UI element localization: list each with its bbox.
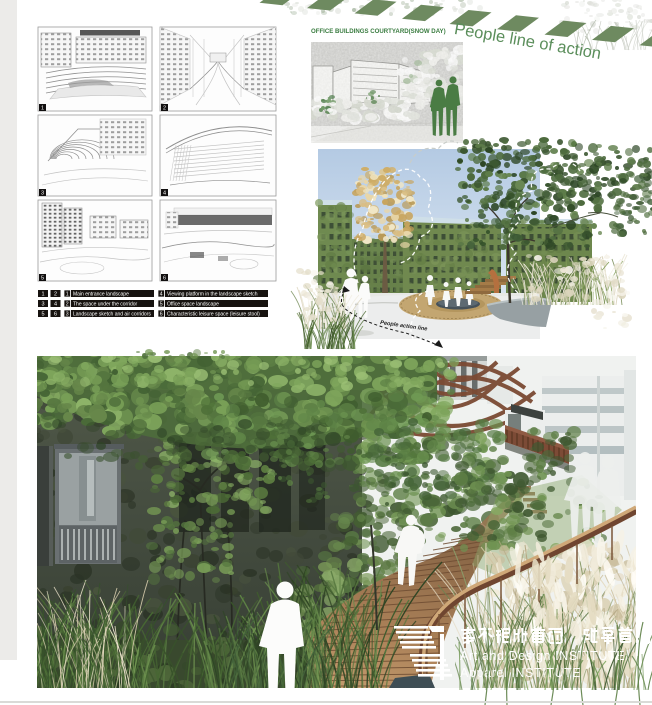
svg-text:5: 5 — [160, 302, 163, 308]
svg-text:6: 6 — [160, 312, 163, 318]
svg-text:1: 1 — [66, 292, 69, 298]
svg-text:4: 4 — [54, 302, 57, 308]
svg-text:4: 4 — [160, 292, 163, 298]
svg-text:Office space landscape: Office space landscape — [167, 301, 219, 307]
svg-text:2: 2 — [66, 302, 69, 308]
svg-text:Landscape sketch and air corri: Landscape sketch and air corridors — [73, 311, 151, 317]
svg-text:5: 5 — [41, 312, 44, 318]
svg-text:1: 1 — [41, 292, 44, 298]
svg-text:The space under the corridor: The space under the corridor — [73, 301, 138, 307]
svg-text:6: 6 — [54, 312, 57, 318]
svg-text:Main entrance landscape: Main entrance landscape — [73, 291, 129, 297]
svg-text:Characteristic leisure space (: Characteristic leisure space (leisure st… — [167, 311, 260, 317]
svg-text:3: 3 — [41, 302, 44, 308]
svg-text:Viewing platform in the landsc: Viewing platform in the landscape sketch — [167, 291, 258, 297]
svg-text:2: 2 — [54, 292, 57, 298]
svg-text:3: 3 — [66, 312, 69, 318]
